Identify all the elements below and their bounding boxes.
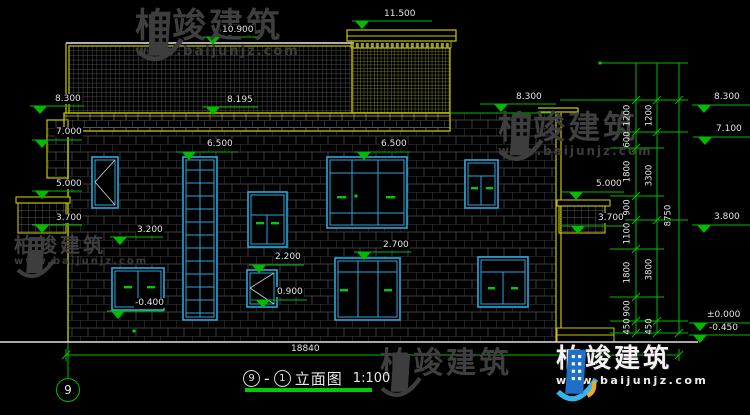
dim-inner-1800b: 1800: [623, 253, 634, 293]
entry-steps: [557, 328, 614, 342]
window-upper-left: [92, 157, 118, 208]
level-8300-right: 8.300: [713, 92, 741, 102]
title-axis-end: 1: [274, 370, 291, 387]
window-ground-right: [478, 257, 528, 307]
title-scale: 1:100: [353, 371, 390, 386]
level-2700: 2.700: [382, 240, 410, 250]
level-3800-right: 3.800: [713, 212, 741, 222]
roof-tower: [347, 30, 456, 113]
level-minus-0450-right: -0.450: [708, 323, 739, 333]
dim-inner-1100: 1100: [623, 214, 634, 254]
title-underline: [245, 388, 372, 392]
level-5000-right: 5.000: [595, 179, 623, 189]
level-ridge: 10.900: [221, 25, 255, 35]
elevation-drawing: [0, 0, 750, 415]
main-roof: [66, 43, 354, 113]
axis-bubble-9: 9: [56, 378, 80, 402]
level-6500-left: 6.500: [206, 139, 234, 149]
title-name: 立面图: [295, 368, 343, 389]
dim-overall-width: 18840: [290, 344, 321, 354]
cad-elevation-screen: 柏竣建筑 www.baijunjz.com 柏竣建筑 www.baijunjz.…: [0, 0, 750, 415]
level-0000-right: ±0.000: [706, 310, 741, 320]
window-small-upper-right: [465, 160, 498, 208]
dim-outer-3800: 3800: [645, 250, 656, 290]
level-0900: 0.900: [276, 287, 304, 297]
level-2200: 2.200: [274, 252, 302, 262]
dim-outer-3300: 3300: [645, 156, 656, 196]
window-ground-center: [335, 258, 400, 320]
level-minus-0400: -0.400: [134, 298, 165, 308]
level-3700-right: 3.700: [597, 213, 625, 223]
window-stair: [183, 157, 217, 320]
window-mid-transom: [248, 192, 287, 247]
level-tower-top: 11.500: [383, 9, 417, 19]
dim-inner-1800: 1800: [623, 152, 634, 192]
level-eave-mid: 8.195: [226, 95, 254, 105]
level-6500-right: 6.500: [380, 139, 408, 149]
level-eave-left: 8.300: [54, 94, 82, 104]
eave-band: [64, 113, 450, 131]
title-dash: -: [264, 369, 270, 388]
level-7000: 7.000: [55, 127, 83, 137]
level-eave-inner-right: 8.300: [515, 92, 543, 102]
dim-outer-450: 450: [645, 307, 656, 347]
dim-outer-1200: 1200: [645, 96, 656, 136]
drawing-title: 9 - 1 立面图 1:100: [243, 368, 390, 389]
level-7100-right: 7.100: [715, 124, 743, 134]
dim-inner-450: 450: [623, 307, 634, 347]
title-axis-start: 9: [243, 370, 260, 387]
window-large-upper: [327, 157, 407, 228]
dim-overall-height: 8750: [664, 196, 675, 236]
axis-bubble-label: 9: [64, 383, 72, 397]
level-5000-left: 5.000: [55, 179, 83, 189]
level-3200: 3.200: [136, 225, 164, 235]
level-3700-left: 3.700: [55, 213, 83, 223]
